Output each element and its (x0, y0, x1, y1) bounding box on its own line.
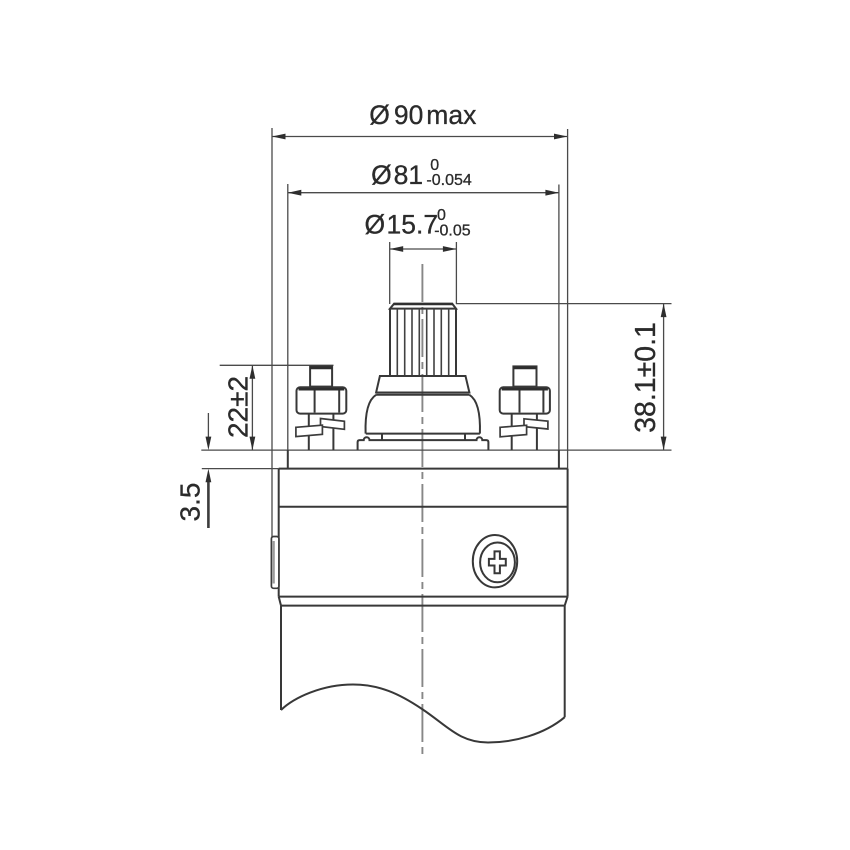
svg-text:Ø: Ø (369, 100, 390, 130)
svg-text:0: 0 (437, 207, 446, 224)
svg-text:3.5: 3.5 (175, 483, 206, 522)
svg-text:Ø: Ø (371, 160, 392, 190)
svg-text:-0.054: -0.054 (426, 172, 471, 189)
svg-text:-0.05: -0.05 (434, 222, 471, 239)
svg-text:81: 81 (394, 160, 423, 190)
svg-text:Ø: Ø (365, 209, 386, 239)
svg-text:22±2: 22±2 (223, 376, 254, 438)
svg-text:90: 90 (394, 100, 423, 130)
svg-text:15.7: 15.7 (387, 209, 439, 239)
svg-text:max: max (426, 100, 476, 130)
svg-text:38.1±0.1: 38.1±0.1 (630, 322, 662, 433)
